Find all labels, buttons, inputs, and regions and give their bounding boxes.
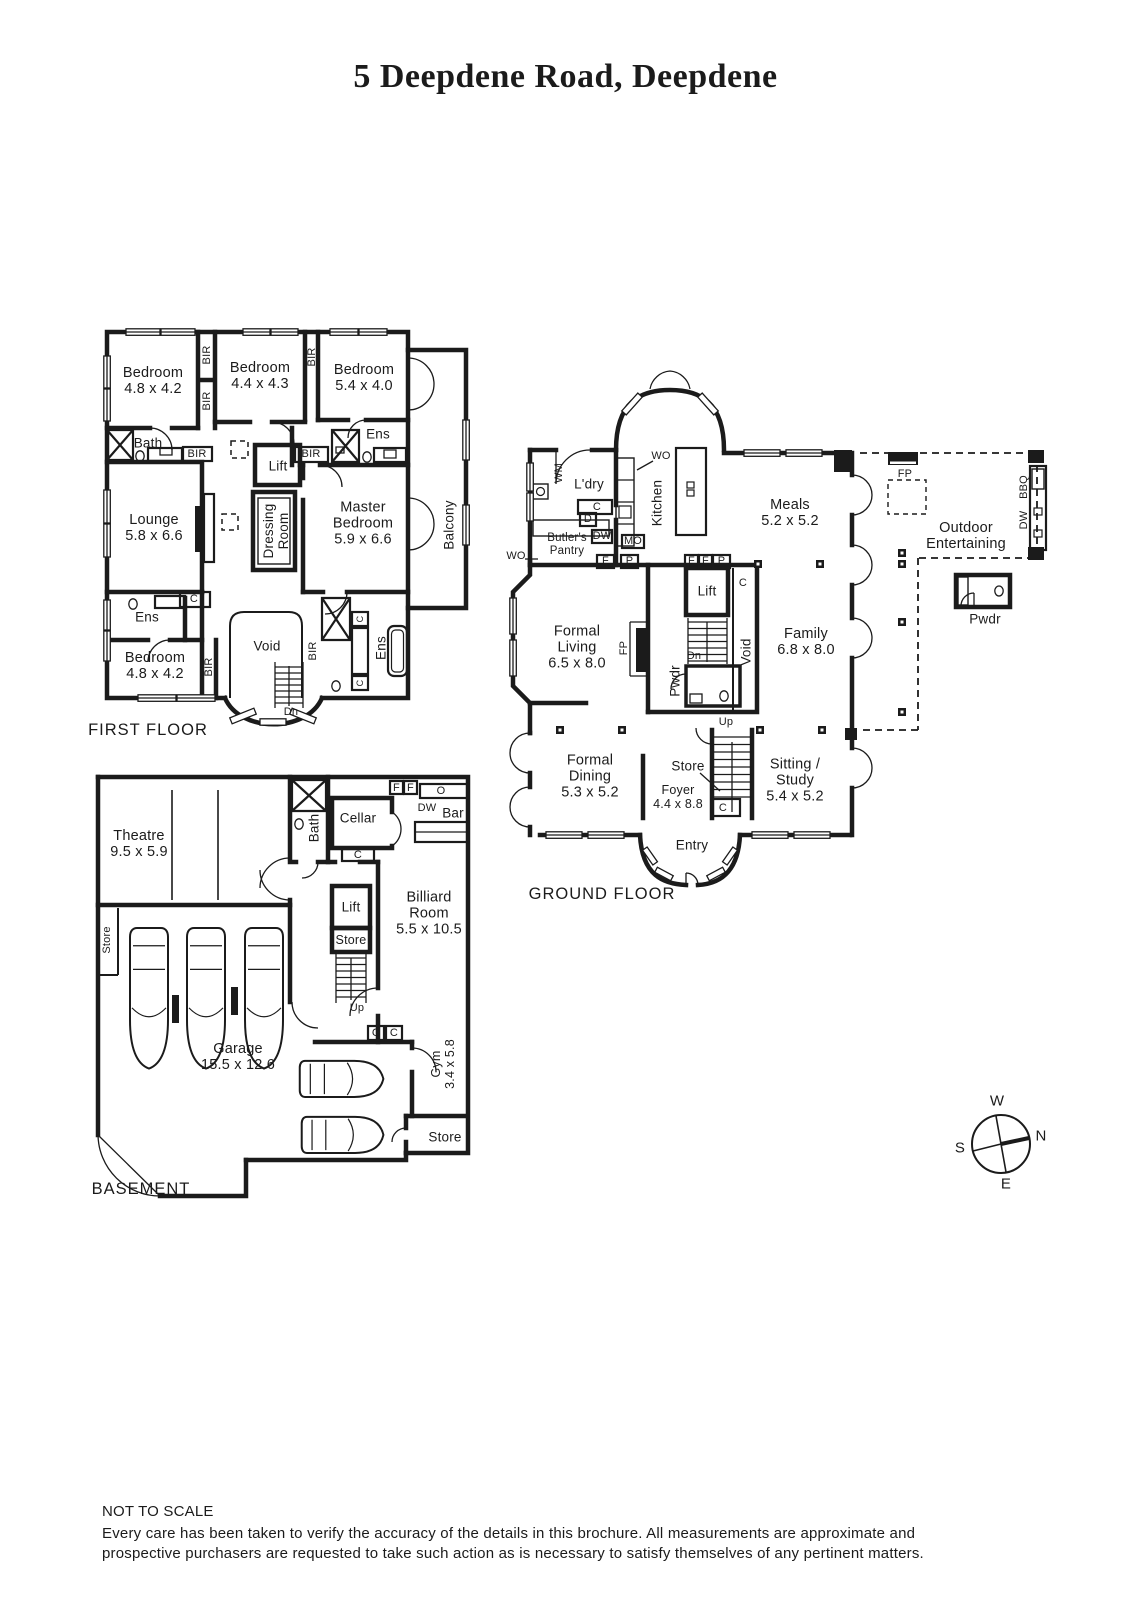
room-label-theatre: Theatre9.5 x 5.9	[110, 828, 167, 860]
store-label: Store	[428, 1129, 461, 1144]
room-label-ens-ne: Ens	[366, 426, 390, 441]
bir-label: BIR	[302, 448, 321, 460]
cupboard-label: C	[372, 1027, 380, 1039]
room-label-balcony: Balcony	[441, 500, 456, 549]
cupboard-label: C	[719, 802, 727, 814]
room-label-gym: Gym3.4 x 5.8	[429, 1039, 457, 1089]
room-label-lift: Lift	[342, 899, 361, 914]
room-label-formal-living: Formal Living6.5 x 8.0	[545, 624, 609, 673]
stairs-down-label: Dn	[284, 706, 298, 718]
store-label: Store	[336, 933, 367, 947]
microwave-label: MO	[624, 535, 642, 547]
room-label-powder: Pwdr	[667, 665, 682, 697]
cupboard-label: C	[354, 849, 362, 861]
stairs-down-label: Dn	[687, 650, 701, 662]
room-label-ens-sw: Ens	[135, 609, 159, 624]
room-label-bedroom-n: Bedroom4.4 x 4.3	[230, 360, 290, 392]
room-label-cellar: Cellar	[340, 810, 376, 825]
store-label: Store	[671, 758, 704, 773]
room-label-kitchen: Kitchen	[649, 480, 664, 526]
fireplace-label: FP	[618, 641, 630, 655]
ground-floor-caption: GROUND FLOOR	[529, 885, 676, 903]
wall-oven-label: WO	[506, 550, 525, 562]
bir-label: BIR	[188, 448, 207, 460]
room-label-bath: Bath	[134, 435, 163, 450]
room-label-laundry: L'dry	[574, 476, 604, 491]
floorplan-page: 5 Deepdene Road, Deepdene	[0, 0, 1131, 1600]
room-label-bedroom-ne: Bedroom5.4 x 4.0	[334, 362, 394, 394]
cupboard-label: C	[739, 577, 747, 589]
stairs-up-label: Up	[350, 1002, 364, 1014]
room-label-bedroom-sw: Bedroom4.8 x 4.2	[125, 650, 185, 682]
wall-oven-label: WO	[651, 450, 670, 462]
bir-label: BIR	[203, 658, 215, 677]
washing-machine-label: WM	[553, 463, 565, 483]
room-label-ens-master: Ens	[373, 636, 388, 660]
dryer-label: D	[584, 513, 592, 525]
fridge-label: F	[688, 555, 695, 567]
bir-label: BIR	[307, 642, 319, 661]
basement-caption: BASEMENT	[92, 1180, 191, 1198]
dishwasher-label: DW	[1018, 511, 1030, 530]
room-label-billiard: Billiard Room5.5 x 10.5	[394, 890, 464, 939]
pantry-label: P	[718, 555, 726, 567]
room-label-garage: Garage15.5 x 12.6	[201, 1041, 275, 1073]
fridge-label: F	[702, 555, 709, 567]
first-floor-black	[195, 506, 204, 552]
fridge-label: F	[393, 782, 400, 794]
room-label-powder: Pwdr	[969, 611, 1001, 626]
compass-south: S	[955, 1141, 965, 1158]
compass-north: N	[1035, 1129, 1046, 1146]
dishwasher-label: DW	[418, 802, 437, 814]
disclaimer-line-2: prospective purchasers are requested to …	[102, 1545, 924, 1562]
room-label-sitting-study: Sitting / Study5.4 x 5.2	[759, 757, 831, 806]
dishwasher-label: DW	[593, 530, 612, 542]
stairs-up-label: Up	[719, 716, 733, 728]
room-label-bar: Bar	[442, 805, 464, 820]
stairs-down-first-floor	[275, 662, 303, 708]
cupboard-label: C	[355, 616, 365, 623]
cupboard-label: C	[593, 501, 601, 513]
first-floor-dashed	[222, 441, 248, 530]
bir-label: BIR	[201, 346, 213, 365]
room-label-lounge: Lounge5.8 x 6.6	[125, 512, 182, 544]
page-title: 5 Deepdene Road, Deepdene	[0, 58, 1131, 96]
room-label-bedroom-nw: Bedroom4.8 x 4.2	[123, 365, 183, 397]
room-label-family: Family6.8 x 8.0	[777, 626, 834, 658]
car-icon	[130, 928, 168, 1069]
compass-east: E	[1001, 1177, 1011, 1194]
pantry-label: P	[626, 555, 634, 567]
entry-label: Entry	[676, 837, 709, 852]
fireplace-label: FP	[898, 468, 912, 480]
room-label-formal-dining: Formal Dining5.3 x 5.2	[558, 753, 622, 802]
not-to-scale-note: NOT TO SCALE	[102, 1503, 214, 1520]
bbq-label: BBQ	[1018, 475, 1030, 499]
cupboard-label: C	[390, 1027, 398, 1039]
room-label-foyer: Foyer4.4 x 8.8	[653, 783, 703, 811]
fridge-label: F	[602, 555, 609, 567]
room-label-void: Void	[253, 638, 280, 653]
room-label-master-bedroom: Master Bedroom5.9 x 6.6	[326, 500, 400, 549]
oven-label: O	[437, 785, 446, 797]
first-floor-caption: FIRST FLOOR	[88, 721, 208, 739]
fridge-label: F	[407, 782, 414, 794]
room-label-butlers-pantry: Butler's Pantry	[538, 532, 596, 558]
disclaimer-line-1: Every care has been taken to verify the …	[102, 1525, 915, 1542]
compass-west: W	[990, 1094, 1004, 1111]
cupboard-label: C	[190, 593, 198, 605]
compass-icon	[920, 1055, 1070, 1205]
ground-floor-black	[556, 450, 1044, 740]
void-label: Void	[738, 638, 753, 665]
bir-label: BIR	[201, 392, 213, 411]
room-label-bath: Bath	[306, 814, 321, 843]
room-label-lift: Lift	[269, 458, 288, 473]
store-label: Store	[101, 926, 113, 953]
stairs-up-basement	[336, 954, 366, 1003]
basement-plan	[85, 755, 485, 1205]
room-label-outdoor-entertaining: OutdoorEntertaining	[926, 520, 1006, 552]
room-label-meals: Meals5.2 x 5.2	[761, 497, 818, 529]
room-label-lift: Lift	[698, 583, 717, 598]
cupboard-label: C	[355, 680, 365, 687]
car-icon	[300, 1061, 384, 1097]
bir-label: BIR	[306, 348, 318, 367]
room-label-dressing-room: Dressing Room	[261, 498, 291, 564]
car-icon	[302, 1117, 384, 1153]
